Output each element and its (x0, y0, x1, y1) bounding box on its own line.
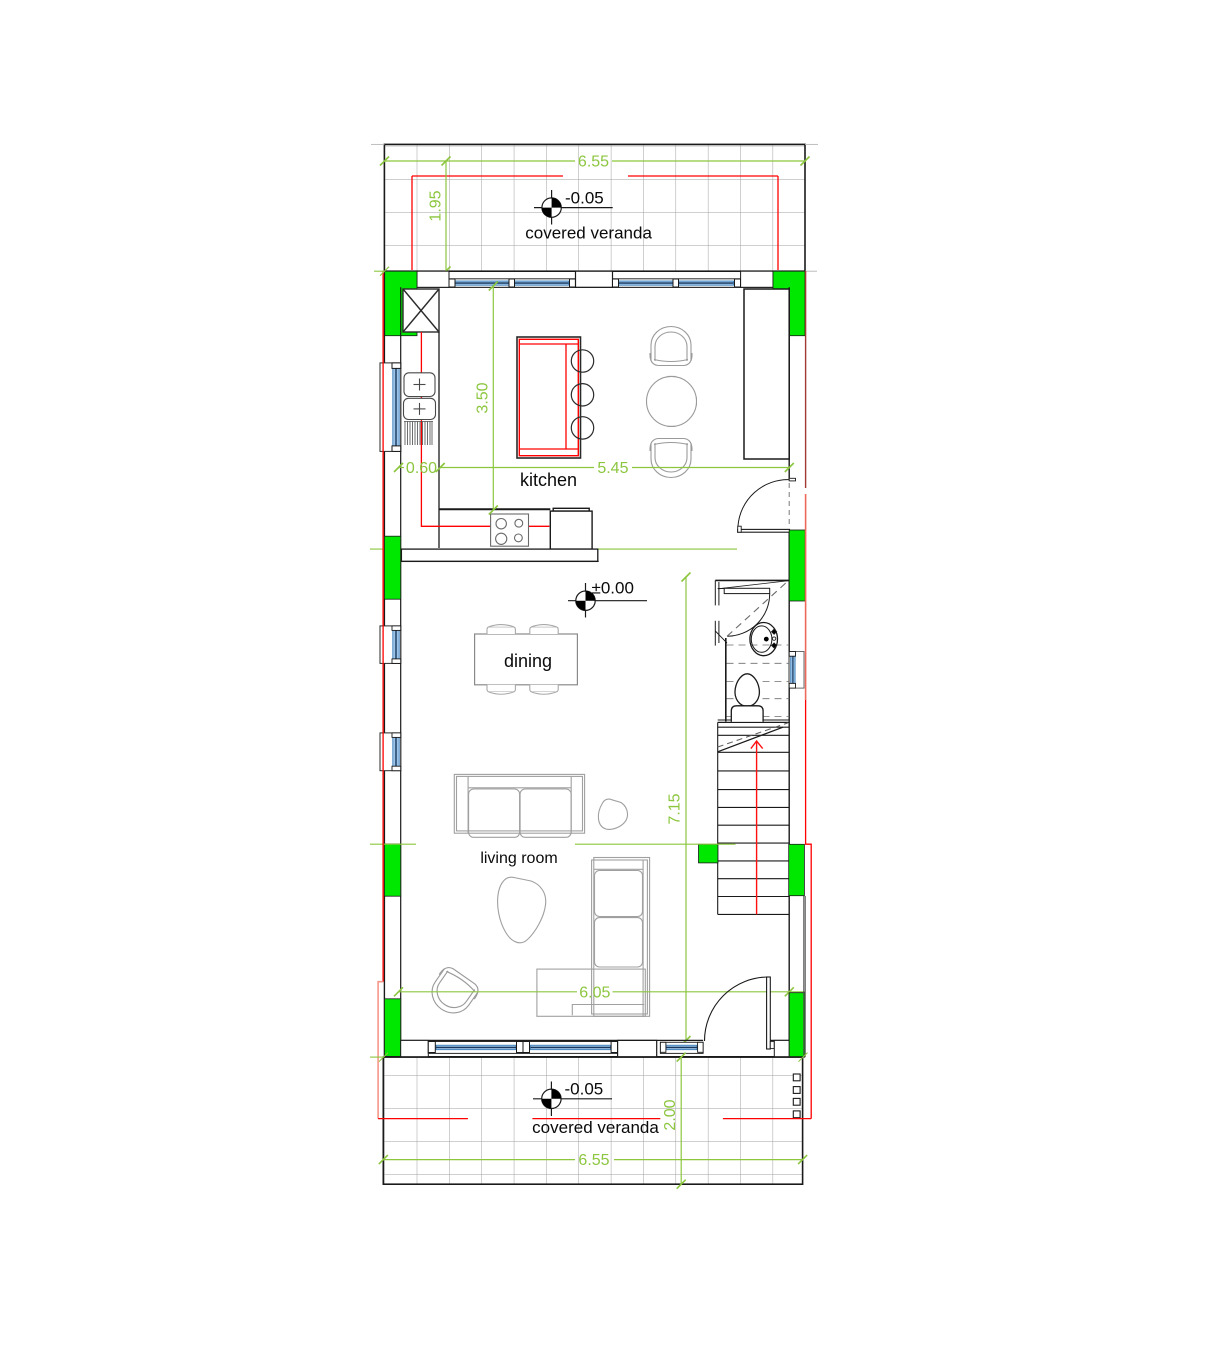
svg-text:covered veranda: covered veranda (525, 224, 652, 243)
svg-text:±0.00: ±0.00 (592, 579, 634, 598)
svg-text:6.05: 6.05 (579, 984, 610, 1001)
svg-text:6.55: 6.55 (578, 1152, 609, 1169)
svg-text:-0.05: -0.05 (565, 189, 604, 208)
svg-text:3.50: 3.50 (475, 382, 492, 413)
svg-text:1.95: 1.95 (428, 190, 445, 221)
svg-text:covered veranda: covered veranda (532, 1118, 659, 1137)
svg-text:6.55: 6.55 (578, 154, 609, 171)
svg-text:2.00: 2.00 (662, 1099, 679, 1130)
svg-text:kitchen: kitchen (520, 470, 577, 490)
svg-text:-0.05: -0.05 (565, 1080, 604, 1099)
svg-text:living room: living room (480, 850, 557, 867)
svg-text:5.45: 5.45 (597, 460, 628, 477)
svg-text:7.15: 7.15 (667, 793, 684, 824)
svg-text:dining: dining (504, 651, 552, 671)
svg-text:0.60: 0.60 (406, 460, 437, 477)
